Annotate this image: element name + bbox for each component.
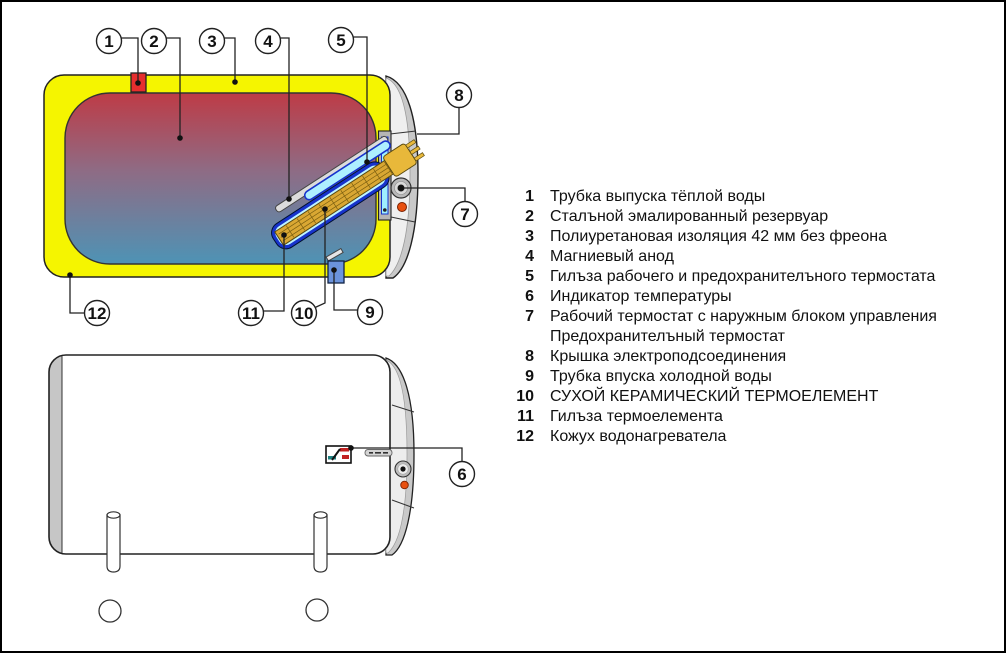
svg-text:10: 10: [295, 304, 314, 323]
legend-item-2: 2 Сталъной эмалированный резервуар: [507, 207, 937, 227]
legend-text: Гилъза рабочего и предохранителъного тер…: [550, 267, 935, 287]
legend-text: Гилъза термоелемента: [550, 407, 723, 427]
legend-num: 10: [507, 387, 534, 407]
legend-num: 2: [507, 207, 534, 227]
legend-item-7b: Предохранителъный термостат: [507, 327, 937, 347]
legend-item-1: 1 Трубка выпуска тёплой воды: [507, 187, 937, 207]
callout-5: 5: [329, 28, 354, 53]
exterior-view: 6: [49, 355, 475, 622]
mounting-leg-left: [107, 512, 120, 572]
legend-num: 11: [507, 407, 534, 427]
svg-text:11: 11: [242, 304, 260, 323]
legend-item-11: 11 Гилъза термоелемента: [507, 407, 937, 427]
svg-text:7: 7: [460, 205, 469, 224]
callout-8: 8: [447, 83, 472, 108]
legend-text: Предохранителъный термостат: [550, 327, 785, 347]
callout-9: 9: [358, 300, 383, 325]
callout-12: 12: [85, 301, 110, 326]
anchor-hole-left: [99, 600, 121, 622]
legend-item-9: 9 Трубка впуска холодной воды: [507, 367, 937, 387]
rating-label: [365, 450, 392, 457]
legend-num: 9: [507, 367, 534, 387]
legend-num: 1: [507, 187, 534, 207]
callout-10: 10: [292, 301, 317, 326]
water-heater-diagram: 1 2 3 4 5 8 7 12: [0, 0, 1006, 653]
legend-num: 6: [507, 287, 534, 307]
svg-text:5: 5: [336, 31, 345, 50]
legend-item-7: 7 Рабочий термостат с наружным блоком уп…: [507, 307, 937, 327]
legend-num: 7: [507, 307, 534, 327]
legend-text: СУХОЙ КЕРАМИЧЕСКИЙ ТЕРМОЕЛЕМЕНТ: [550, 387, 878, 407]
legend-text: Сталъной эмалированный резервуар: [550, 207, 828, 227]
svg-text:4: 4: [263, 32, 273, 51]
svg-text:8: 8: [454, 86, 463, 105]
temperature-indicator: [326, 446, 351, 463]
legend-text: Рабочий термостат с наружным блоком упра…: [550, 307, 937, 327]
legend-text: Трубка впуска холодной воды: [550, 367, 772, 387]
legend-num: 8: [507, 347, 534, 367]
svg-text:1: 1: [104, 32, 113, 51]
legend-text: Индикатор температуры: [550, 287, 732, 307]
legend-item-12: 12 Кожух водонагревателa: [507, 427, 937, 447]
legend-item-8: 8 Крышка электроподсоединения: [507, 347, 937, 367]
callout-7: 7: [453, 202, 478, 227]
svg-text:12: 12: [88, 304, 107, 323]
legend: 1 Трубка выпуска тёплой воды 2 Сталъной …: [507, 187, 937, 447]
legend-text: Трубка выпуска тёплой воды: [550, 187, 765, 207]
legend-item-3: 3 Полиуретановая изоляция 42 мм без фрео…: [507, 227, 937, 247]
anchor-hole-right: [306, 599, 328, 621]
callout-11: 11: [239, 301, 264, 326]
legend-text: Кожух водонагревателa: [550, 427, 726, 447]
legend-item-6: 6 Индикатор температуры: [507, 287, 937, 307]
legend-text: Магниевый анод: [550, 247, 674, 267]
exterior-pilot-light: [401, 481, 409, 489]
pilot-light: [398, 203, 407, 212]
legend-item-5: 5 Гилъза рабочего и предохранителъного т…: [507, 267, 937, 287]
legend-item-10: 10 СУХОЙ КЕРАМИЧЕСКИЙ ТЕРМОЕЛЕМЕНТ: [507, 387, 937, 407]
callout-anchor-dot-6: [348, 445, 354, 451]
cutaway-view: 1 2 3 4 5 8 7 12: [44, 28, 478, 326]
svg-text:9: 9: [365, 303, 374, 322]
legend-num: 3: [507, 227, 534, 247]
legend-num: 12: [507, 427, 534, 447]
legend-item-4: 4 Магниевый анод: [507, 247, 937, 267]
legend-text: Полиуретановая изоляция 42 мм без фреона: [550, 227, 887, 247]
svg-text:3: 3: [207, 32, 216, 51]
mounting-leg-right: [314, 512, 327, 572]
callout-4: 4: [256, 29, 281, 54]
legend-num: 4: [507, 247, 534, 267]
svg-text:6: 6: [457, 465, 466, 484]
callout-6: 6: [450, 462, 475, 487]
exterior-thermostat-knob: [395, 461, 411, 477]
callout-2: 2: [142, 29, 167, 54]
callout-1: 1: [97, 29, 122, 54]
callout-3: 3: [200, 29, 225, 54]
legend-num: [507, 327, 534, 347]
legend-num: 5: [507, 267, 534, 287]
svg-text:2: 2: [149, 32, 158, 51]
legend-text: Крышка электроподсоединения: [550, 347, 786, 367]
